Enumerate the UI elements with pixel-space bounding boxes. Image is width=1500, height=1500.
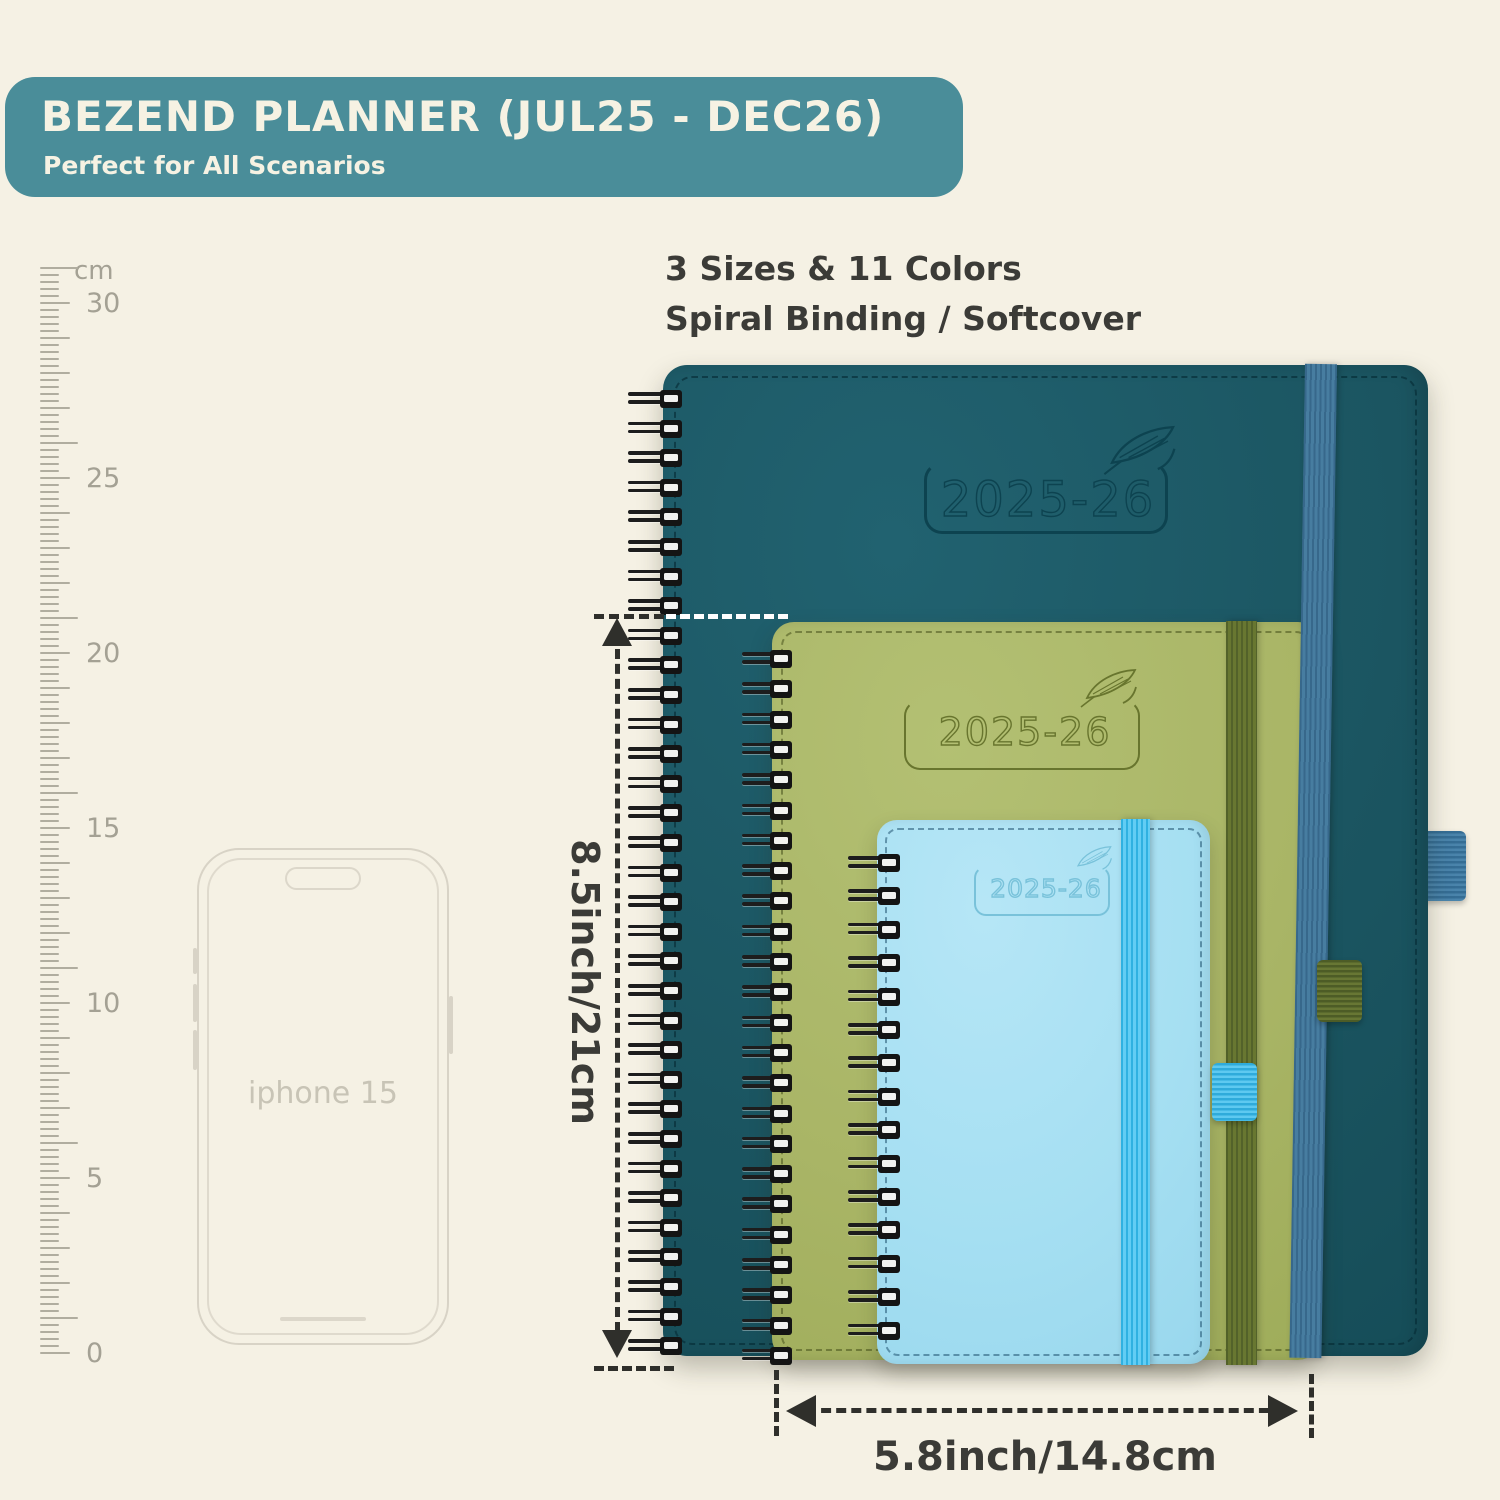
coil-wire bbox=[848, 964, 882, 968]
coil-punch-hole bbox=[878, 887, 900, 905]
width-dimension-label: 5.8inch/14.8cm bbox=[845, 1434, 1245, 1480]
height-dimension-line bbox=[615, 634, 620, 1332]
spiral-coil bbox=[848, 854, 902, 874]
coil-punch-hole bbox=[878, 1322, 900, 1340]
coil-wire bbox=[848, 1031, 882, 1035]
coil-punch-hole bbox=[878, 1188, 900, 1206]
width-extension-line-right bbox=[1309, 1374, 1314, 1438]
coil-wire bbox=[848, 1056, 882, 1060]
coil-wire bbox=[848, 856, 882, 860]
coil-wire bbox=[848, 1098, 882, 1102]
coil-wire bbox=[848, 1298, 882, 1302]
coil-punch-hole bbox=[878, 988, 900, 1006]
spiral-coil bbox=[848, 1221, 902, 1241]
spiral-coil bbox=[848, 887, 902, 907]
spiral-coil bbox=[848, 1054, 902, 1074]
coil-punch-hole bbox=[878, 1221, 900, 1239]
spiral-binding-small bbox=[0, 0, 1500, 1500]
height-arrow-up-icon bbox=[602, 618, 632, 646]
product-image-canvas: BEZEND PLANNER (JUL25 - DEC26) Perfect f… bbox=[0, 0, 1500, 1500]
coil-wire bbox=[848, 931, 882, 935]
coil-wire bbox=[848, 889, 882, 893]
coil-wire bbox=[848, 1131, 882, 1135]
coil-wire bbox=[848, 998, 882, 1002]
width-arrow-right-icon bbox=[1268, 1395, 1298, 1427]
spiral-coil bbox=[848, 988, 902, 1008]
coil-wire bbox=[848, 1123, 882, 1127]
coil-wire bbox=[848, 923, 882, 927]
coil-punch-hole bbox=[878, 1054, 900, 1072]
spiral-coil bbox=[848, 1188, 902, 1208]
spiral-coil bbox=[848, 1088, 902, 1108]
coil-punch-hole bbox=[878, 854, 900, 872]
spiral-coil bbox=[848, 1288, 902, 1308]
spiral-coil bbox=[848, 1322, 902, 1342]
coil-wire bbox=[848, 1324, 882, 1328]
coil-wire bbox=[848, 1198, 882, 1202]
spiral-coil bbox=[848, 1255, 902, 1275]
width-dimension-line bbox=[806, 1408, 1284, 1413]
coil-wire bbox=[848, 1265, 882, 1269]
coil-wire bbox=[848, 1023, 882, 1027]
coil-wire bbox=[848, 1165, 882, 1169]
coil-punch-hole bbox=[878, 1021, 900, 1039]
coil-punch-hole bbox=[878, 1255, 900, 1273]
coil-punch-hole bbox=[878, 1155, 900, 1173]
coil-wire bbox=[848, 956, 882, 960]
coil-punch-hole bbox=[878, 1288, 900, 1306]
spiral-coil bbox=[848, 1155, 902, 1175]
coil-wire bbox=[848, 990, 882, 994]
coil-wire bbox=[848, 1332, 882, 1336]
spiral-coil bbox=[848, 954, 902, 974]
coil-wire bbox=[848, 864, 882, 868]
coil-wire bbox=[848, 1231, 882, 1235]
width-arrow-left-icon bbox=[786, 1395, 816, 1427]
coil-wire bbox=[848, 897, 882, 901]
height-extension-line-bottom bbox=[594, 1366, 674, 1371]
height-arrow-down-icon bbox=[602, 1330, 632, 1358]
coil-punch-hole bbox=[878, 1088, 900, 1106]
height-dimension-label: 8.5inch/21cm bbox=[563, 822, 607, 1142]
pen-loop-small bbox=[1212, 1063, 1257, 1121]
coil-punch-hole bbox=[878, 921, 900, 939]
coil-wire bbox=[848, 1090, 882, 1094]
spiral-coil bbox=[848, 1021, 902, 1041]
width-extension-line-left bbox=[774, 1370, 779, 1436]
coil-wire bbox=[848, 1223, 882, 1227]
coil-wire bbox=[848, 1290, 882, 1294]
spiral-coil bbox=[848, 921, 902, 941]
coil-punch-hole bbox=[878, 954, 900, 972]
coil-wire bbox=[848, 1190, 882, 1194]
coil-punch-hole bbox=[878, 1121, 900, 1139]
coil-wire bbox=[848, 1257, 882, 1261]
coil-wire bbox=[848, 1064, 882, 1068]
spiral-coil bbox=[848, 1121, 902, 1141]
coil-wire bbox=[848, 1157, 882, 1161]
